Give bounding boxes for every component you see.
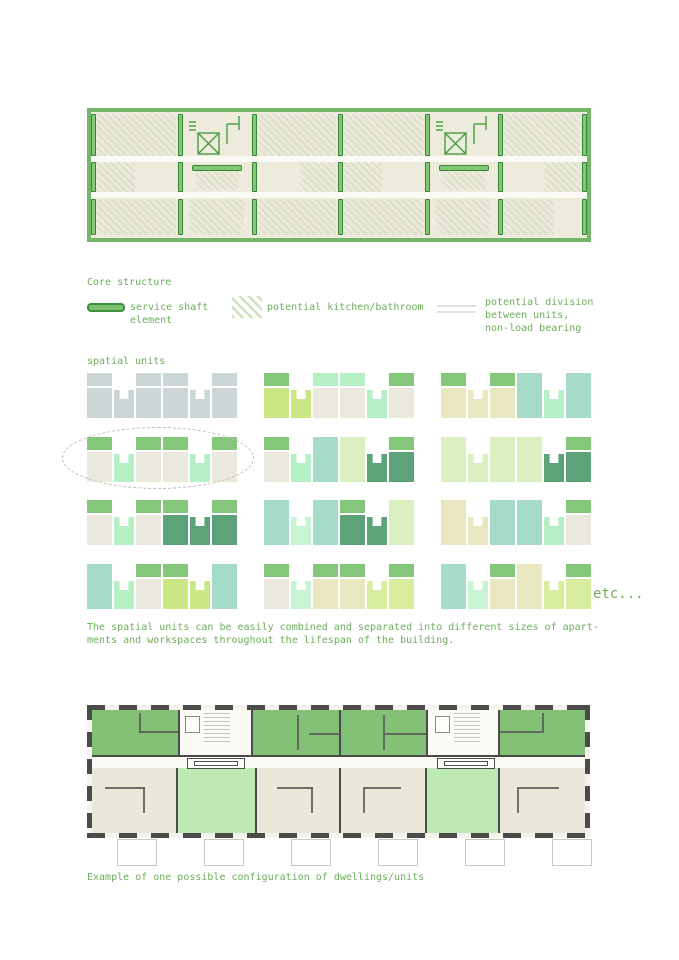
spatial-unit-diagram	[87, 373, 237, 418]
partition-wall	[139, 731, 178, 733]
kitchen-unit-block	[190, 581, 210, 609]
kitchen-unit-block	[367, 454, 387, 482]
interior-wall	[251, 710, 253, 755]
unit-cap	[136, 564, 161, 577]
spatial-unit-block	[566, 437, 591, 482]
spatial-unit-block	[490, 500, 515, 545]
kitchen-unit-block	[367, 390, 387, 418]
spatial-unit-block	[163, 373, 188, 418]
spatial-unit-block	[441, 500, 466, 545]
stair-core	[183, 114, 249, 156]
service-shaft-element	[582, 162, 587, 192]
kitchen-bathroom-zone	[436, 199, 490, 235]
balcony	[378, 839, 418, 866]
unit-body	[566, 579, 591, 609]
interior-wall	[178, 710, 180, 755]
interior-wall	[339, 710, 341, 755]
unit-cap	[136, 500, 161, 513]
spatial-unit-block	[340, 564, 365, 609]
unit-cap	[389, 437, 414, 450]
unit-body	[136, 388, 161, 418]
spatial-unit-block	[490, 373, 515, 418]
partition-wall	[277, 787, 313, 789]
spatial-unit-diagram	[264, 437, 414, 482]
stair-tread	[204, 733, 230, 734]
unit-cap	[566, 564, 591, 577]
spatial-unit-block	[517, 437, 542, 482]
kitchen-counter	[187, 758, 245, 769]
unit-cap	[87, 500, 112, 513]
exterior-wall	[87, 705, 590, 710]
spatial-unit-diagram	[441, 500, 591, 545]
kitchen-table	[194, 761, 238, 766]
kitchen-unit-block	[114, 390, 134, 418]
stair-tread	[204, 729, 230, 730]
kitchen-counter	[192, 165, 242, 171]
spatial-units-title: spatial units	[87, 355, 165, 368]
service-shaft-element	[582, 114, 587, 156]
stair-core-icon	[183, 114, 249, 156]
kitchen-bathroom-zone	[97, 114, 176, 156]
kitchen-unit-block	[367, 517, 387, 545]
stair-tread	[454, 737, 480, 738]
unit-body	[566, 452, 591, 482]
spatial-unit-block	[517, 500, 542, 545]
kitchen-bathroom-zone	[97, 199, 176, 235]
service-shaft-element	[582, 199, 587, 235]
kitchen-bathroom-zone	[344, 199, 423, 235]
stair-tread	[204, 713, 230, 714]
kitchen-bathroom-zone	[344, 162, 382, 192]
balcony	[552, 839, 592, 866]
elevator-shaft	[185, 716, 200, 733]
kitchen-bathroom-zone	[443, 172, 485, 190]
spatial-unit-diagram	[87, 500, 237, 545]
unit-body	[566, 515, 591, 545]
kitchen-unit-block	[468, 517, 488, 545]
kitchen-unit-block	[468, 390, 488, 418]
unit-cap	[389, 373, 414, 386]
stair-tread	[204, 737, 230, 738]
kitchen-unit-block	[468, 454, 488, 482]
division-lines-icon	[437, 311, 476, 313]
service-shaft-element	[91, 199, 96, 235]
unit-cap	[212, 373, 237, 386]
service-shaft-element	[338, 162, 343, 192]
kitchen-bathroom-zone	[300, 162, 336, 192]
unit-cap	[566, 437, 591, 450]
service-shaft-element	[425, 199, 430, 235]
exterior-wall	[87, 833, 590, 838]
spatial-unit-block	[389, 373, 414, 418]
spatial-unit-block	[87, 500, 112, 545]
unit-body	[264, 388, 289, 418]
spatial-units-caption: The spatial units can be easily combined…	[87, 621, 607, 647]
unit-body	[264, 579, 289, 609]
unit-cap	[441, 373, 466, 386]
stair-tread	[454, 717, 480, 718]
partition-wall	[363, 787, 365, 813]
spatial-unit-diagram	[441, 437, 591, 482]
spatial-unit-block	[389, 500, 414, 545]
stair-core	[430, 114, 496, 156]
spatial-unit-block	[313, 437, 338, 482]
unit-body	[340, 515, 365, 545]
service-shaft-element	[178, 162, 183, 192]
kitchen-unit-block	[468, 581, 488, 609]
partition-wall	[311, 787, 313, 813]
unit-cap	[264, 564, 289, 577]
unit-cap	[212, 500, 237, 513]
spatial-unit-block	[441, 564, 466, 609]
stair-tread	[204, 725, 230, 726]
kitchen-bathroom-zone	[189, 199, 244, 235]
spatial-unit-block	[212, 564, 237, 609]
unit-body	[389, 388, 414, 418]
kitchen-unit-block	[291, 517, 311, 545]
kitchen-bathroom-zone	[258, 199, 336, 235]
partition-wall	[500, 731, 542, 733]
spatial-unit-diagram	[441, 373, 591, 418]
page: Core structure service shaft element pot…	[0, 0, 679, 960]
spatial-unit-block	[212, 373, 237, 418]
interior-wall	[339, 768, 341, 833]
unit-body	[264, 452, 289, 482]
unit-cap	[264, 437, 289, 450]
stair-tread	[454, 741, 480, 742]
unit-body	[340, 388, 365, 418]
unit-body	[389, 579, 414, 609]
partition-wall	[139, 713, 141, 733]
kitchen-bathroom-zone	[258, 114, 336, 156]
kitchen-bathroom-zone	[545, 162, 581, 192]
kitchen-counter	[439, 165, 489, 171]
spatial-unit-diagram	[87, 564, 237, 609]
service-shaft-element	[252, 162, 257, 192]
unit-cap	[313, 373, 338, 386]
kitchen-unit-block	[544, 581, 564, 609]
service-shaft-element	[498, 199, 503, 235]
stair-tread	[454, 729, 480, 730]
stair-tread	[204, 717, 230, 718]
interior-wall	[498, 710, 500, 755]
kitchen-counter	[437, 758, 495, 769]
spatial-unit-block	[340, 500, 365, 545]
unit-body	[136, 515, 161, 545]
unit-body	[87, 388, 112, 418]
interior-wall	[498, 768, 500, 833]
interior-wall	[425, 768, 427, 833]
interior-wall	[255, 768, 257, 833]
unit-cap	[163, 500, 188, 513]
unit-body	[163, 515, 188, 545]
unit-cap	[87, 373, 112, 386]
dwelling-room-light-green	[427, 768, 500, 833]
spatial-unit-block	[490, 564, 515, 609]
kitchen-unit-block	[190, 517, 210, 545]
spatial-unit-block	[313, 564, 338, 609]
spatial-unit-diagram	[441, 564, 591, 609]
elevator-shaft	[435, 716, 450, 733]
kitchen-bathroom-zone	[196, 172, 238, 190]
partition-wall	[542, 713, 544, 733]
core-structure-floor-plan	[87, 108, 591, 242]
legend-label-division: potential division between units, non-lo…	[485, 296, 593, 335]
unit-cap	[340, 373, 365, 386]
kitchen-unit-block	[190, 390, 210, 418]
division-lines-icon	[437, 305, 476, 307]
spatial-unit-block	[87, 564, 112, 609]
spatial-unit-block	[136, 373, 161, 418]
partition-wall	[517, 787, 519, 813]
spatial-unit-block	[313, 500, 338, 545]
interior-wall	[426, 710, 428, 755]
partition-wall	[309, 733, 339, 735]
spatial-unit-block	[264, 437, 289, 482]
unit-cap	[264, 373, 289, 386]
balcony	[465, 839, 505, 866]
spatial-unit-block	[566, 564, 591, 609]
kitchen-unit-block	[367, 581, 387, 609]
unit-body	[163, 579, 188, 609]
spatial-unit-block	[136, 500, 161, 545]
unit-body	[87, 515, 112, 545]
selection-ellipse	[62, 427, 254, 489]
spatial-unit-block	[517, 373, 542, 418]
unit-cap	[313, 564, 338, 577]
spatial-unit-diagram	[264, 500, 414, 545]
unit-body	[441, 388, 466, 418]
service-shaft-element	[425, 162, 430, 192]
unit-body	[389, 452, 414, 482]
kitchen-bathroom-zone	[504, 199, 554, 235]
kitchen-unit-block	[114, 517, 134, 545]
kitchen-bathroom-zone	[97, 162, 135, 192]
service-shaft-element	[498, 162, 503, 192]
kitchen-unit-block	[544, 517, 564, 545]
balcony	[117, 839, 157, 866]
unit-body	[136, 579, 161, 609]
kitchen-unit-block	[544, 454, 564, 482]
partition-wall	[383, 715, 385, 750]
spatial-unit-block	[87, 373, 112, 418]
interior-wall	[176, 768, 178, 833]
spatial-unit-block	[264, 373, 289, 418]
spatial-unit-block	[389, 437, 414, 482]
spatial-unit-block	[163, 564, 188, 609]
spatial-unit-block	[340, 373, 365, 418]
partition-wall	[297, 715, 299, 750]
unit-cap	[490, 373, 515, 386]
spatial-unit-block	[313, 373, 338, 418]
exterior-wall	[585, 705, 590, 838]
kitchen-bathroom-zone	[504, 114, 580, 156]
stair-tread	[204, 741, 230, 742]
service-shaft-element	[498, 114, 503, 156]
dwellings-floor-plan	[87, 705, 590, 838]
unit-body	[340, 579, 365, 609]
spatial-unit-block	[264, 564, 289, 609]
kitchen-bathroom-zone	[344, 114, 423, 156]
service-shaft-element	[338, 114, 343, 156]
service-shaft-element	[338, 199, 343, 235]
service-shaft-element	[91, 114, 96, 156]
balcony	[291, 839, 331, 866]
partition-wall	[105, 787, 145, 789]
unit-cap	[340, 500, 365, 513]
spatial-unit-diagram	[264, 373, 414, 418]
unit-cap	[136, 373, 161, 386]
unit-body	[313, 388, 338, 418]
spatial-unit-block	[264, 500, 289, 545]
spatial-unit-block	[490, 437, 515, 482]
stair-tread	[454, 721, 480, 722]
unit-body	[163, 388, 188, 418]
unit-cap	[163, 564, 188, 577]
legend-title: Core structure	[87, 276, 171, 289]
spatial-unit-block	[163, 500, 188, 545]
unit-body	[490, 388, 515, 418]
service-shaft-element	[178, 199, 183, 235]
spatial-unit-block	[441, 437, 466, 482]
legend-label-service-shaft: service shaft element	[130, 301, 208, 327]
stair-tread	[204, 721, 230, 722]
balcony	[204, 839, 244, 866]
unit-body	[212, 515, 237, 545]
dwelling-room-light-green	[177, 768, 257, 833]
service-shaft-element	[91, 162, 96, 192]
spatial-unit-block	[441, 373, 466, 418]
unit-body	[212, 388, 237, 418]
spatial-unit-block	[566, 500, 591, 545]
stair-core-icon	[430, 114, 496, 156]
stair-tread	[454, 733, 480, 734]
spatial-unit-block	[136, 564, 161, 609]
division-band	[91, 192, 587, 198]
service-shaft-element	[252, 199, 257, 235]
unit-cap	[389, 564, 414, 577]
unit-body	[313, 579, 338, 609]
spatial-unit-block	[566, 373, 591, 418]
partition-wall	[519, 787, 559, 789]
unit-cap	[490, 564, 515, 577]
legend-label-kitchen-bathroom: potential kitchen/bathroom	[267, 301, 424, 314]
dwelling-room-green	[92, 710, 178, 755]
kitchen-unit-block	[291, 581, 311, 609]
kitchen-unit-block	[291, 390, 311, 418]
spatial-unit-diagram	[264, 564, 414, 609]
unit-cap	[566, 500, 591, 513]
partition-wall	[143, 787, 145, 813]
kitchen-unit-block	[291, 454, 311, 482]
kitchen-table	[444, 761, 488, 766]
spatial-unit-block	[212, 500, 237, 545]
exterior-wall	[87, 705, 92, 838]
service-shaft-element	[252, 114, 257, 156]
partition-wall	[383, 733, 426, 735]
unit-cap	[163, 373, 188, 386]
kitchen-unit-block	[114, 581, 134, 609]
interior-wall	[92, 755, 585, 757]
kitchen-unit-block	[544, 390, 564, 418]
service-shaft-icon	[87, 303, 125, 312]
kitchen-bathroom-hatch-icon	[232, 296, 262, 318]
spatial-unit-block	[389, 564, 414, 609]
unit-body	[490, 579, 515, 609]
spatial-unit-block	[517, 564, 542, 609]
partition-wall	[365, 787, 401, 789]
stair-tread	[454, 713, 480, 714]
spatial-unit-block	[340, 437, 365, 482]
unit-cap	[340, 564, 365, 577]
etc-label: etc...	[593, 586, 644, 602]
bottom-plan-caption: Example of one possible configuration of…	[87, 871, 424, 884]
stair-tread	[454, 725, 480, 726]
